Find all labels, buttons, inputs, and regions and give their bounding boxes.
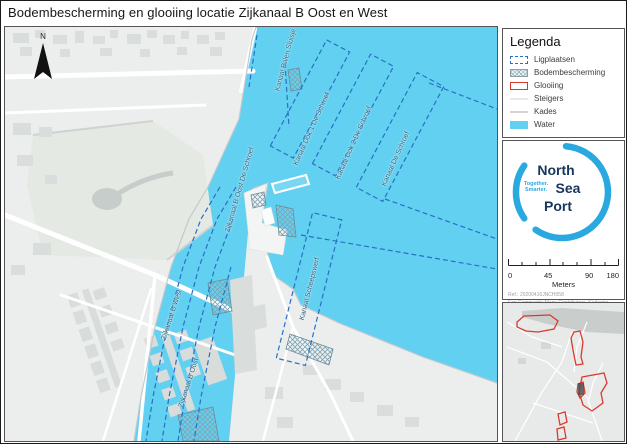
- ligplaatsen-swatch-icon: [510, 56, 528, 64]
- main-map-canvas: N Kanaal Palen Sluisje Kanaal Dok 1 De S…: [4, 26, 498, 442]
- logo-scale-panel: North Sea Port Together. Smarter. 0 45 9…: [502, 140, 625, 300]
- legend-item-steigers: Steigers: [510, 92, 624, 105]
- north-arrow: N: [31, 33, 55, 88]
- map-export-page: Bodembescherming en glooiing locatie Zij…: [0, 0, 627, 444]
- svg-text:Port: Port: [544, 198, 572, 214]
- reference-number: Ref.: 20200416JNCH058: [508, 292, 620, 298]
- svg-text:North: North: [537, 162, 574, 178]
- overview-map-drawing: [503, 303, 624, 441]
- glooiing-swatch-icon: [510, 82, 528, 90]
- page-title: Bodembescherming en glooiing locatie Zij…: [8, 5, 387, 20]
- scale-bar: 0 45 90 180 Meters: [508, 253, 619, 289]
- steigers-swatch-icon: [510, 98, 528, 100]
- main-map-drawing: [5, 27, 497, 441]
- legend-item-water: Water: [510, 118, 624, 131]
- water-swatch-icon: [510, 121, 528, 129]
- glooiing-outline: [517, 315, 607, 440]
- north-arrow-label: N: [31, 33, 55, 41]
- legend-item-glooiing: Glooiing: [510, 79, 624, 92]
- north-arrow-icon: [31, 41, 55, 83]
- north-sea-port-logo: North Sea Port Together. Smarter.: [503, 141, 624, 245]
- extent-marker: [578, 383, 584, 395]
- scale-bar-unit: Meters: [508, 280, 619, 289]
- svg-text:Sea: Sea: [556, 180, 581, 196]
- legend-item-kades: Kades: [510, 105, 624, 118]
- overview-map: [502, 302, 625, 442]
- legend-item-bodembescherming: Bodembescherming: [510, 66, 624, 79]
- bodembescherming-swatch-icon: [510, 69, 528, 77]
- legend-item-ligplaatsen: Ligplaatsen: [510, 53, 624, 66]
- legend-title: Legenda: [510, 34, 624, 49]
- legend-panel: Legenda Ligplaatsen Bodembescherming Glo…: [502, 28, 625, 138]
- svg-text:Smarter.: Smarter.: [525, 187, 547, 193]
- scale-bar-ticks: [508, 258, 619, 266]
- kades-swatch-icon: [510, 111, 528, 113]
- scale-bar-labels: 0 45 90 180: [508, 271, 619, 280]
